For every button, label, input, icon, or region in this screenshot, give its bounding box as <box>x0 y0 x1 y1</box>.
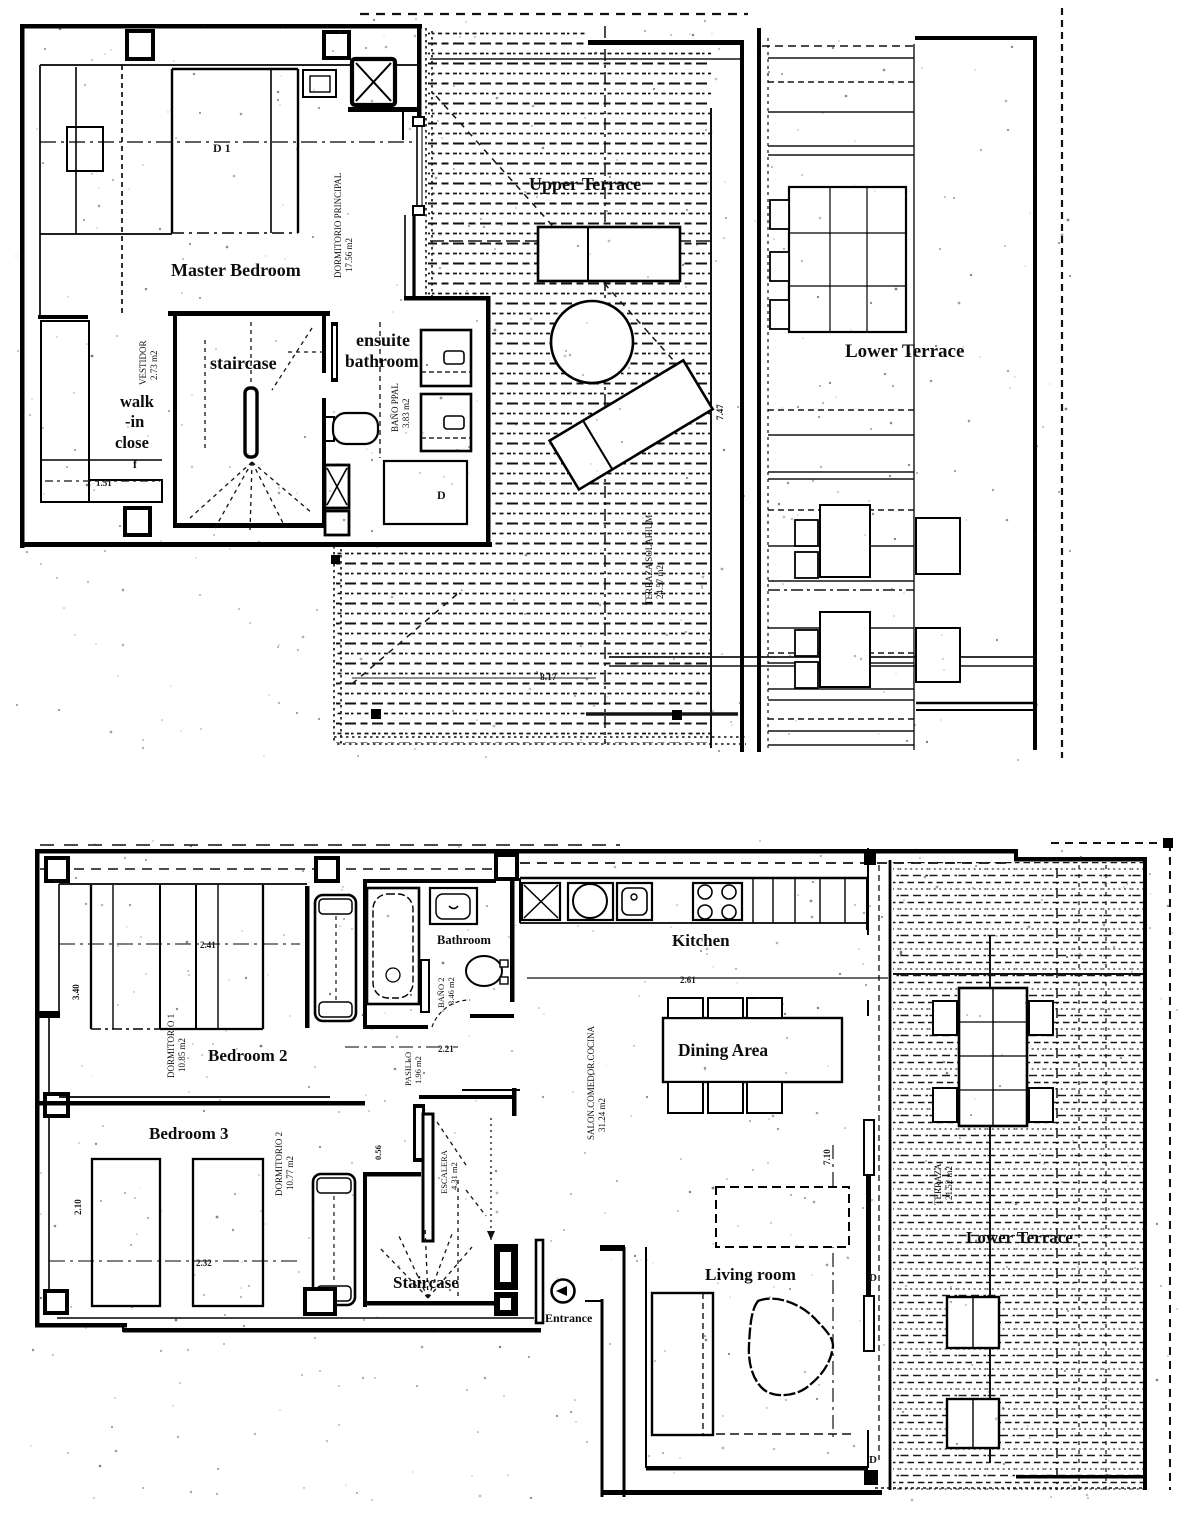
svg-text:bathroom: bathroom <box>345 351 419 371</box>
svg-text:close: close <box>115 433 149 452</box>
svg-text:D: D <box>437 488 446 502</box>
svg-text:3.46 m2: 3.46 m2 <box>446 977 456 1005</box>
svg-text:Bedroom 3: Bedroom 3 <box>149 1124 229 1143</box>
svg-text:2.73 m2: 2.73 m2 <box>149 350 159 380</box>
svg-text:BAÑO PPAL: BAÑO PPAL <box>390 383 400 432</box>
svg-text:8.17: 8.17 <box>540 673 557 683</box>
svg-text:D: D <box>869 1454 877 1466</box>
svg-text:SALON.COMEDOR.COCINA: SALON.COMEDOR.COCINA <box>586 1025 596 1140</box>
svg-text:2.61: 2.61 <box>680 975 696 985</box>
svg-text:PASILLO: PASILLO <box>403 1052 413 1086</box>
svg-text:Entrance: Entrance <box>545 1311 593 1325</box>
svg-text:Dining Area: Dining Area <box>678 1040 768 1060</box>
svg-text:Living room: Living room <box>705 1265 797 1284</box>
svg-text:staircase: staircase <box>210 353 277 373</box>
svg-text:4.31 m2: 4.31 m2 <box>449 1162 459 1190</box>
svg-text:7.10: 7.10 <box>822 1149 832 1165</box>
svg-text:walk: walk <box>120 392 155 411</box>
svg-text:7.47: 7.47 <box>715 404 725 420</box>
svg-text:TERRAZA: TERRAZA <box>933 1163 943 1205</box>
svg-text:10.77 m2: 10.77 m2 <box>285 1156 295 1190</box>
svg-text:ESCALERA: ESCALERA <box>439 1149 449 1194</box>
svg-text:1.51: 1.51 <box>96 478 112 488</box>
svg-text:10.85 m2: 10.85 m2 <box>177 1038 187 1072</box>
svg-text:Lower Terrace: Lower Terrace <box>966 1228 1073 1247</box>
svg-text:3.83 m2: 3.83 m2 <box>401 398 411 428</box>
svg-text:21.52 m2: 21.52 m2 <box>944 1166 954 1200</box>
svg-text:0.56: 0.56 <box>373 1145 383 1160</box>
svg-text:17.56 m2: 17.56 m2 <box>344 238 354 272</box>
svg-text:Master Bedroom: Master Bedroom <box>171 260 301 280</box>
svg-text:24.57 m2: 24.57 m2 <box>655 565 665 599</box>
svg-text:1.96 m2: 1.96 m2 <box>413 1056 423 1084</box>
svg-text:DORMITORIO PRINCIPAL: DORMITORIO PRINCIPAL <box>333 173 343 278</box>
svg-text:2.41: 2.41 <box>200 940 216 950</box>
svg-text:-in: -in <box>125 412 144 431</box>
svg-text:VESTIDOR: VESTIDOR <box>138 341 148 386</box>
svg-text:3.40: 3.40 <box>71 984 81 1000</box>
svg-text:Bedroom 2: Bedroom 2 <box>208 1046 288 1065</box>
svg-text:Bathroom: Bathroom <box>437 933 492 947</box>
svg-text:2.32: 2.32 <box>196 1258 212 1268</box>
svg-text:D 1: D 1 <box>213 141 231 155</box>
svg-text:Lower Terrace: Lower Terrace <box>845 341 964 362</box>
svg-text:Kitchen: Kitchen <box>672 931 730 950</box>
svg-text:ensuite: ensuite <box>356 330 410 350</box>
svg-text:2.10: 2.10 <box>73 1199 83 1215</box>
svg-text:2.21: 2.21 <box>438 1044 454 1054</box>
svg-text:DORMITORIO 1: DORMITORIO 1 <box>166 1014 176 1078</box>
svg-text:31.24 m2: 31.24 m2 <box>597 1098 607 1132</box>
svg-text:BAÑO 2: BAÑO 2 <box>436 978 446 1008</box>
svg-text:TERRAZA SOLARIUM: TERRAZA SOLARIUM <box>644 515 654 605</box>
svg-text:D: D <box>869 1272 877 1284</box>
svg-text:DORMITORIO 2: DORMITORIO 2 <box>274 1132 284 1196</box>
svg-text:Upper Terrace: Upper Terrace <box>529 174 641 194</box>
